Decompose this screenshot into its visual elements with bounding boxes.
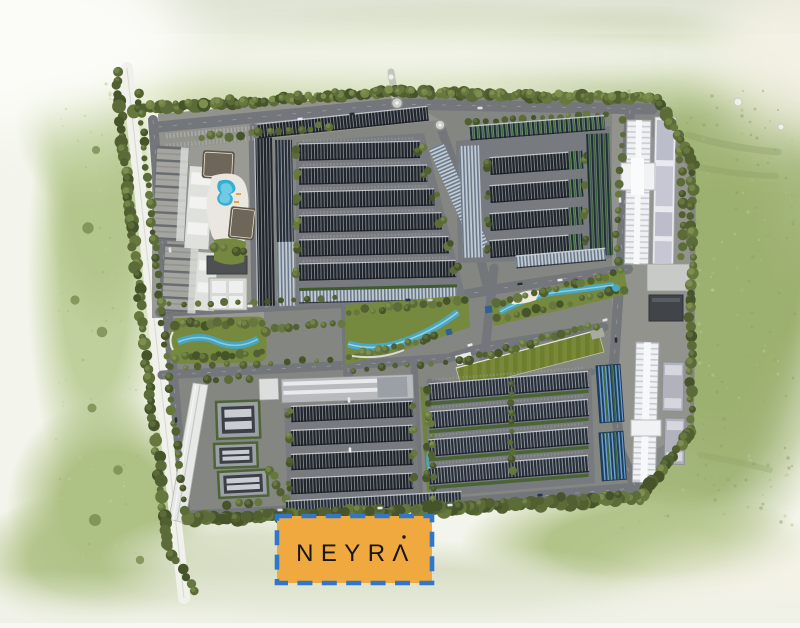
- svg-text:NEYRΛ: NEYRΛ: [296, 540, 416, 567]
